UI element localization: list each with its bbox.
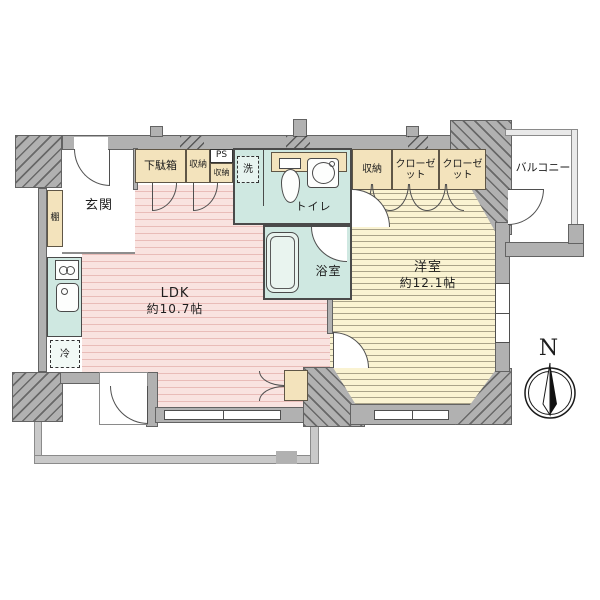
western-window-right	[495, 283, 510, 343]
bathtub	[266, 232, 299, 293]
storage-b-label: 収納	[211, 164, 232, 182]
balcony-wall-side	[568, 224, 584, 244]
ldk-label: LDK 約10.7帖	[123, 281, 227, 321]
stove-burner-right	[66, 266, 75, 275]
wall-hatch-tick-3	[408, 136, 428, 149]
lower-balcony-step	[276, 451, 297, 464]
pipe-space-label: PS	[211, 150, 232, 162]
bathtub-inner	[270, 236, 295, 289]
shelf-label: 棚	[48, 191, 62, 246]
western-window-bottom	[374, 410, 449, 420]
ldk-name: LDK	[161, 286, 190, 302]
compass-rose	[521, 362, 579, 420]
western-room-name: 洋室	[414, 260, 442, 276]
ldk-western-wall-stub	[327, 298, 333, 334]
toilet-tank	[279, 158, 301, 169]
balcony-wall-bottom	[505, 242, 584, 257]
western-window-mullion	[412, 411, 413, 419]
washer-space: 洗	[237, 156, 259, 183]
ldk-size: 約10.7帖	[147, 302, 204, 316]
wall-hatch-tick-1	[180, 136, 204, 149]
lower-balcony-rail-right	[310, 425, 319, 464]
top-wall-bump-2	[293, 119, 307, 137]
compass-needle-west	[543, 363, 550, 415]
bottom-wall-left	[60, 372, 100, 384]
pipe-space-box: PS	[210, 149, 233, 163]
storage-a-label: 収納	[187, 150, 209, 182]
corner-block-top-left	[15, 135, 62, 188]
corner-block-bottom-left	[12, 372, 63, 422]
balcony-door-swing	[508, 189, 544, 225]
toilet-sink	[307, 158, 339, 188]
genkan-label: 玄関	[67, 198, 131, 214]
storage-box-a: 収納	[186, 149, 210, 183]
getabako-label: 下駄箱	[136, 150, 185, 182]
kitchen-sink	[56, 283, 79, 312]
ldk-window	[164, 410, 281, 420]
fridge-space: 冷	[50, 340, 80, 368]
ldk-closet-box	[284, 370, 308, 401]
shelf-tana: 棚	[47, 190, 63, 247]
compass-north-label: N	[536, 336, 562, 362]
bath-label: 浴室	[301, 263, 356, 279]
western-room-size: 約12.1帖	[400, 276, 457, 290]
ldk-window-mullion	[223, 411, 224, 419]
floor-plan: 棚 下駄箱 収納 PS 収納 洗 収納 クローゼット クローゼット 冷	[0, 0, 600, 600]
balcony-label: バルコニー	[507, 160, 579, 175]
toilet-label: トイレ	[286, 199, 341, 214]
western-window-right-mullion	[496, 313, 509, 314]
western-room-label: 洋室 約12.1帖	[376, 253, 480, 297]
kitchen-sink-drain	[61, 288, 68, 295]
balcony-rail-top	[505, 129, 578, 136]
left-wall	[38, 188, 47, 372]
fridge-label: 冷	[51, 341, 79, 367]
storage-box-b: 収納	[210, 163, 233, 183]
compass-needle-east	[550, 363, 557, 415]
washer-label: 洗	[238, 157, 258, 182]
kitchen-stove	[55, 260, 79, 280]
getabako-box: 下駄箱	[135, 149, 186, 183]
top-wall-bump-1	[150, 126, 163, 137]
toilet-sink-faucet	[329, 161, 335, 167]
washroom-divider	[263, 150, 264, 206]
